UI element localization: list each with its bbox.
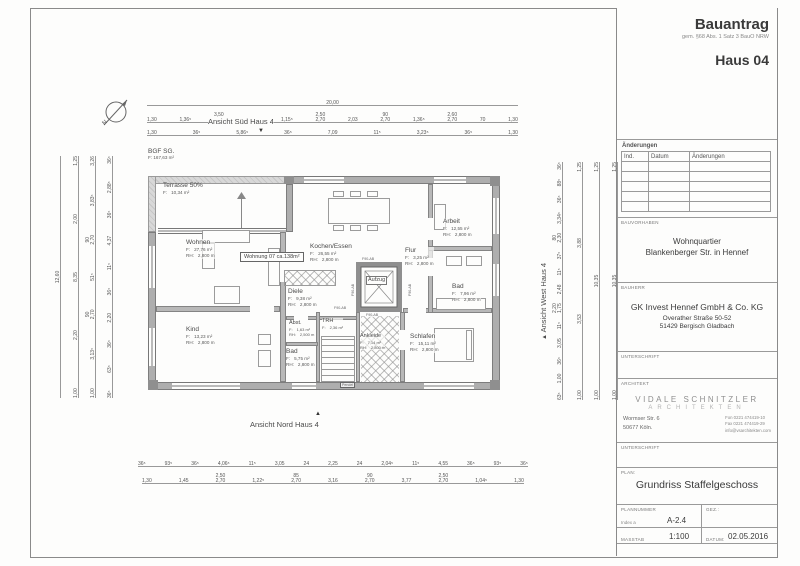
changes-section: Änderungen Ind. Datum Änderungen — [617, 140, 777, 218]
dimension-value: 24 — [357, 462, 363, 467]
dimension-value: 36⁵ — [558, 162, 563, 170]
elevation-label-west: ▲ Ansicht West Haus 4 — [539, 263, 548, 340]
dimension-value: 11⁵ — [558, 322, 563, 329]
dimension-value: 93⁵ — [494, 462, 502, 467]
dimension-value: 3,13⁵ — [91, 348, 96, 360]
dimension-value: 37⁵ — [558, 252, 563, 260]
dimension-value: 3,88 — [578, 238, 583, 248]
room-name: Terrasse 50% — [163, 182, 203, 190]
pilaster — [284, 176, 294, 184]
plan-number-value: A-2.4 — [667, 516, 686, 525]
dimension-value: 1,25 — [595, 162, 600, 172]
dimension-value: 1,00 — [74, 388, 79, 398]
dimension-value: 1,04⁵ — [475, 479, 487, 484]
dimension-value: 1,30 — [508, 131, 518, 136]
architect-street: Wormser Str. 6 — [623, 415, 660, 424]
dimension-value: 11⁵ — [249, 462, 256, 467]
dimension-value: 2,20 1,75 — [553, 303, 564, 313]
room-name: Arbeit — [443, 218, 472, 226]
window — [424, 382, 474, 390]
room-name: Kochen/Essen — [310, 243, 352, 251]
room-name: Schlafen — [410, 333, 439, 341]
fire-rating-label: F90-AB — [408, 284, 412, 296]
chair — [367, 191, 378, 197]
date-cell: DATUM: 02.05.2016 — [701, 528, 777, 543]
dimension-value: 2,60 2,70 — [447, 113, 457, 124]
changes-empty-row — [622, 192, 771, 202]
client-city: 51429 Bergisch Gladbach — [617, 323, 777, 330]
elevation-marker-west-icon: ▲ — [542, 334, 548, 340]
dimension-chain-right-far: 1,2510,351,00 — [606, 162, 618, 400]
dimension-value: 2,48 — [558, 285, 563, 295]
changes-empty-row — [622, 202, 771, 212]
dimension-value: 2,20 — [74, 330, 79, 340]
dimension-chain-right-mid: 1,253,883,531,00 — [570, 162, 583, 400]
pendel-note: Pendel — [340, 382, 355, 388]
project-label: BAUVORHABEN — [617, 218, 777, 225]
dimension-value: 36⁵ — [558, 195, 563, 203]
pilaster — [490, 380, 500, 390]
dimension-value: 1,25 — [613, 162, 618, 172]
dimension-chain-left-inner: 3,263,83⁵90 2,7051⁵90 2,703,13⁵1,00 — [82, 156, 96, 398]
scale-value: 1:100 — [669, 532, 689, 541]
pillow — [466, 330, 472, 360]
fire-rating-label: F90-AB — [334, 306, 346, 310]
dimension-chain-left-overall: 12,60 — [50, 156, 61, 398]
elevation-marker-north-icon: ▲ — [315, 411, 321, 417]
dimension-value: 20,00 — [326, 101, 339, 106]
room-name: Wohnen — [186, 239, 215, 247]
room-label-diele: Diele F:9,38 m² RH:2,800 m — [288, 288, 317, 308]
dimension-value: 24 — [304, 462, 310, 467]
dimension-value: 36⁵ — [108, 211, 113, 219]
chair — [367, 225, 378, 231]
slope-arrow — [241, 196, 242, 228]
changes-col-aenderungen: Änderungen — [690, 152, 771, 162]
dimension-value: 36⁵ — [108, 340, 113, 348]
window — [492, 198, 500, 234]
window — [292, 382, 316, 390]
dimension-chain-left-wall: 36⁵2,88⁵36⁵4,3711⁵36⁵2,2036⁵63⁵36⁵ — [100, 156, 113, 398]
client-street: Overather Straße 50-52 — [617, 315, 777, 322]
date-label: DATUM: — [702, 535, 725, 542]
elevator-shaft — [356, 262, 402, 312]
door-opening — [250, 306, 274, 312]
room-name: Kind — [186, 326, 215, 334]
wall — [286, 342, 318, 346]
dimension-value: 2,50 2,70 — [438, 474, 448, 485]
title-block: Bauantrag gem. §68 Abs. 1 Satz 3 BauO NR… — [616, 8, 777, 556]
dimension-value: 11⁵ — [108, 263, 113, 270]
wall — [428, 246, 492, 251]
dimension-value: 36⁵ — [108, 288, 113, 296]
bgf-title: BGF SG. — [148, 148, 174, 155]
dimension-value: 2,00 — [74, 214, 79, 224]
architect-firm-name: VIDALE SCHNITZLER — [617, 395, 777, 404]
room-name: Flur — [405, 247, 434, 255]
dimension-value: 3,34⁵ — [558, 212, 563, 224]
changes-empty-row — [622, 172, 771, 182]
dimension-value: 3,16 — [328, 479, 338, 484]
dimension-value: 2,88⁵ — [108, 181, 113, 193]
fire-rating-label: F90-AB — [366, 313, 378, 317]
dimension-value: 36⁵ — [191, 462, 199, 467]
chair — [333, 191, 344, 197]
dining-table — [328, 198, 390, 224]
chair — [333, 225, 344, 231]
dimension-value: 63⁵ — [108, 365, 113, 373]
dimension-value: 93⁵ — [165, 462, 173, 467]
dimension-value: 11⁵ — [412, 462, 419, 467]
dimension-chain-bottom-2: 1,301,452,50 2,701,22⁵85 2,703,1690 2,70… — [142, 468, 524, 484]
room-label-terrasse: Terrasse 50% F:10,34 m² — [163, 182, 203, 196]
coffee-table — [214, 286, 240, 304]
window — [304, 176, 344, 184]
wall — [148, 176, 156, 232]
architect-city: 50677 Köln. — [623, 424, 660, 433]
elevation-label-north: Ansicht Nord Haus 4 — [250, 420, 319, 429]
dimension-value: 36⁵ — [558, 357, 563, 365]
dimension-value: 36⁵ — [467, 462, 475, 467]
dimension-value: 4,55 — [438, 462, 448, 467]
dimension-value: 90 2,70 — [86, 309, 97, 319]
elevation-marker-south-icon: ▼ — [258, 128, 264, 134]
architect-email: info@vsarchitekten.com — [725, 428, 771, 434]
plan-title: Grundriss Staffelgeschoss — [617, 479, 777, 491]
room-name: Bad — [286, 348, 315, 356]
room-label-arbeit: Arbeit F:12,55 m² RH:2,800 m — [443, 218, 472, 238]
dimension-value: 36⁵ — [465, 131, 473, 136]
architect-fax: Fax 0221 474419-29 — [725, 421, 771, 427]
door-opening — [428, 218, 433, 240]
bgf-area: F: 167,63 m² — [148, 155, 174, 160]
plan-sheet: Bauantrag gem. §68 Abs. 1 Satz 3 BauO NR… — [0, 0, 800, 566]
changes-empty-row — [622, 162, 771, 172]
room-label-bad2: Bad F:7,96 m² RH:2,800 m — [452, 283, 481, 303]
signature-section-1: UNTERSCHRIFT — [617, 352, 777, 379]
dimension-value: 11⁵ — [373, 131, 380, 136]
slope-arrow-head-icon — [237, 192, 246, 199]
window — [434, 176, 466, 184]
sink — [446, 256, 462, 266]
room-label-flur: Flur F:3,25 m² RH:2,800 m — [405, 247, 434, 267]
changes-empty-row — [622, 182, 771, 192]
client-section: BAUHERR GK Invest Hennef GmbH & Co. KG O… — [617, 283, 777, 352]
dimension-value: 3,83⁵ — [91, 194, 96, 206]
plan-index: Index a — [621, 520, 636, 525]
plan-number-section: PLANNUMMER Index a A-2.4 GEZ.: — [617, 505, 777, 528]
room-label-trh: TRH F:2,36 m² — [322, 318, 343, 330]
dimension-value: 36⁵ — [193, 131, 201, 136]
wall — [286, 184, 293, 232]
dimension-value: 51⁵ — [91, 273, 96, 281]
changes-col-datum: Datum — [649, 152, 690, 162]
dimension-value: 1,30 — [142, 479, 152, 484]
window — [172, 382, 240, 390]
dimension-chain-right-wall: 36⁵88⁵36⁵3,34⁵80 2,3037⁵11⁵2,482,20 1,75… — [550, 162, 563, 400]
sink — [258, 350, 271, 367]
dimension-value: 12,60 — [56, 271, 61, 284]
dimension-value: 80 2,30 — [553, 233, 564, 243]
room-label-kochen: Kochen/Essen F:26,55 m² RH:2,800 m — [310, 243, 352, 263]
dimension-value: 36⁵ — [138, 462, 146, 467]
elevation-label-south: Ansicht Süd Haus 4 — [208, 117, 274, 126]
dimension-value: 4,37 — [108, 236, 113, 246]
title-header-section: Bauantrag gem. §68 Abs. 1 Satz 3 BauO NR… — [617, 8, 777, 140]
dimension-value: 1,00 — [91, 388, 96, 398]
room-label-wohnen: Wohnen F:27,76 m² RH:2,800 m — [186, 239, 215, 259]
window — [148, 328, 156, 366]
dimension-value: 1,00 — [558, 374, 563, 384]
dimension-value: 90 2,70 — [380, 113, 390, 124]
dimension-value: 1,00 — [578, 390, 583, 400]
plan-label: PLAN: — [617, 468, 777, 475]
wall — [316, 312, 320, 382]
room-name: Abst. — [289, 320, 314, 327]
scale-label: MASSTAB — [617, 535, 644, 542]
room-label-abst: Abst. F:1,63 m² RH:2,500 m — [289, 320, 314, 337]
document-title: Bauantrag — [617, 8, 777, 33]
room-name: Diele — [288, 288, 317, 296]
dimension-value: 2,20 — [108, 313, 113, 323]
changes-col-ind: Ind. — [622, 152, 649, 162]
architect-section: ARCHITEKT VIDALE SCHNITZLER ARCHITEKTEN … — [617, 379, 777, 443]
room-label-kind: Kind F:13,23 m² RH:2,800 m — [186, 326, 215, 346]
signature-section-2: UNTERSCHRIFT — [617, 443, 777, 468]
room-label-aufzug: Aufzug — [366, 276, 387, 285]
dimension-value: 36⁵ — [284, 131, 292, 136]
dimension-chain-top-1: 1,301,36⁵3,50 2,701,36⁵1,15⁵2,50 2,702,0… — [147, 107, 518, 123]
room-name: Aufzug — [366, 276, 387, 285]
dimension-value: 85 2,70 — [291, 474, 301, 485]
room-label-ankleide: Ankleide F:7,14 m² RH:2,800 m — [360, 333, 385, 350]
dimension-value: 1,30 — [147, 131, 157, 136]
document-subtitle: gem. §68 Abs. 1 Satz 3 BauO NRW — [617, 33, 777, 40]
fire-rating-label: F90-AB — [362, 257, 374, 261]
dimension-chain-top-overall: 20,00 — [147, 94, 518, 106]
dimension-chain-right-outer: 1,2510,351,00 — [588, 162, 600, 400]
chair — [350, 225, 361, 231]
dimension-value: 3,53 — [578, 314, 583, 324]
apartment-label: Wohnung 07 ca.138m² — [240, 252, 304, 262]
dimension-value: 3,77 — [402, 479, 412, 484]
dimension-chain-top-2: 1,3036⁵5,86⁵36⁵7,0911⁵3,23⁵36⁵1,30 — [147, 123, 518, 136]
date-value: 02.05.2016 — [728, 532, 768, 541]
client-label: BAUHERR — [617, 283, 777, 290]
dimension-value: 3,05 — [275, 462, 285, 467]
door-opening — [408, 308, 426, 313]
dimension-value: 1,22⁵ — [252, 479, 264, 484]
dimension-chain-left-mid: 1,252,008,352,201,00 — [66, 156, 79, 398]
house-number: Haus 04 — [617, 40, 777, 68]
signature-label-2: UNTERSCHRIFT — [617, 443, 777, 450]
dimension-value: 2,50 2,70 — [316, 113, 326, 124]
dimension-value: 1,30 — [514, 479, 524, 484]
room-label-bad1: Bad F:5,75 m² RH:2,800 m — [286, 348, 315, 368]
dimension-value: 1,25 — [578, 162, 583, 172]
changes-table: Ind. Datum Änderungen — [621, 151, 771, 212]
fire-rating-label: F90-AB — [351, 284, 355, 296]
dimension-value: 90 2,70 — [86, 235, 97, 245]
dimension-value: 63⁵ — [558, 392, 563, 400]
dimension-value: 11⁵ — [558, 268, 563, 275]
sink — [466, 256, 482, 266]
architect-label: ARCHITEKT — [617, 379, 777, 386]
dimension-value: 7,09 — [328, 131, 338, 136]
dimension-value: 10,35 — [595, 275, 600, 288]
dimension-chain-bottom-1: 36⁵93⁵36⁵4,06⁵11⁵3,05242,25242,04⁵11⁵4,5… — [138, 453, 528, 467]
dimension-value: 2,04⁵ — [381, 462, 393, 467]
dimension-value: 36⁵ — [108, 156, 113, 164]
dimension-value: 3,23⁵ — [417, 131, 429, 136]
chair — [350, 191, 361, 197]
dimension-value: 8,35 — [74, 272, 79, 282]
dimension-value: 1,45 — [179, 479, 189, 484]
dimension-value: 1,25 — [74, 156, 79, 166]
drawn-by-cell: GEZ.: — [701, 505, 777, 527]
project-line2: Blankenberger Str. in Hennef — [617, 248, 777, 257]
staircase — [321, 336, 355, 382]
pilaster — [490, 176, 500, 186]
client-name: GK Invest Hennef GmbH & Co. KG — [617, 302, 777, 312]
pilaster — [148, 380, 158, 390]
dimension-value: 36⁵ — [520, 462, 528, 467]
dimension-value: 4,06⁵ — [218, 462, 230, 467]
door-opening — [400, 330, 405, 350]
dimension-value: 3,05 — [558, 338, 563, 348]
changes-label: Änderungen — [617, 140, 777, 149]
dimension-value: 10,35 — [613, 275, 618, 288]
project-section: BAUVORHABEN Wohnquartier Blankenberger S… — [617, 218, 777, 283]
dimension-value: 2,25 — [328, 462, 338, 467]
window — [492, 264, 500, 296]
room-name: Bad — [452, 283, 481, 291]
dimension-value: 2,50 2,70 — [216, 474, 226, 485]
plan-title-section: PLAN: Grundriss Staffelgeschoss — [617, 468, 777, 505]
dimension-value: 1,00 — [595, 390, 600, 400]
project-line1: Wohnquartier — [617, 237, 777, 246]
kitchen-counter — [284, 270, 336, 286]
dimension-value: 90 2,70 — [365, 474, 375, 485]
toilet — [258, 334, 271, 345]
signature-label-1: UNTERSCHRIFT — [617, 352, 777, 359]
room-name: Ankleide — [360, 333, 385, 340]
window — [148, 246, 156, 288]
dimension-value: 5,86⁵ — [236, 131, 248, 136]
room-name: TRH — [322, 318, 343, 325]
dimension-value: 3,26 — [91, 156, 96, 166]
room-label-schlafen: Schlafen F:15,11 m² RH:2,800 m — [410, 333, 439, 353]
drawn-by-label: GEZ.: — [702, 505, 777, 512]
dimension-value: 1,00 — [613, 390, 618, 400]
dimension-value: 88⁵ — [558, 179, 563, 187]
dimension-value: 36⁵ — [108, 390, 113, 398]
scale-date-section: MASSTAB 1:100 DATUM: 02.05.2016 — [617, 528, 777, 544]
